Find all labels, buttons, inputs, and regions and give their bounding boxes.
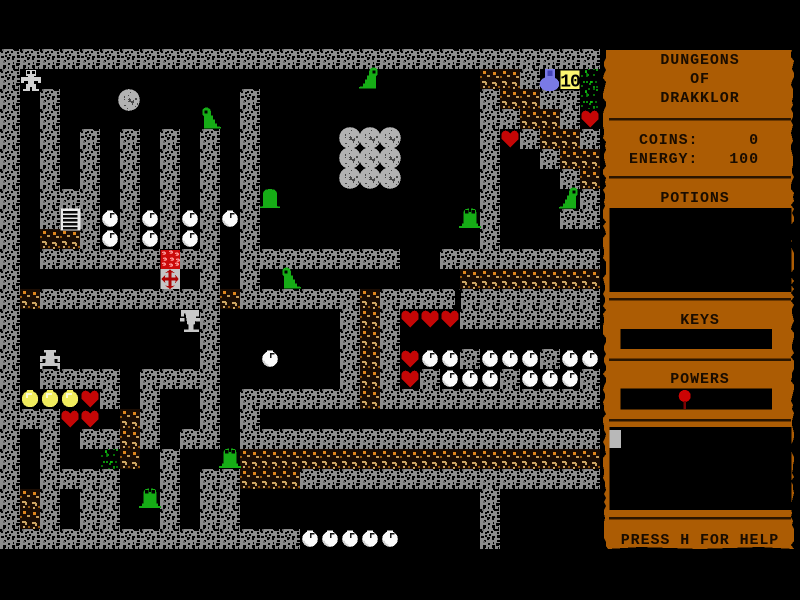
svg-text:100: 100 [729,151,759,168]
svg-text:COINS:: COINS: [639,132,698,149]
svg-text:0: 0 [749,132,759,149]
svg-text:POWERS: POWERS [670,371,729,388]
svg-text:POTIONS: POTIONS [660,190,729,207]
svg-text:KEYS: KEYS [680,312,720,329]
svg-text:OF: OF [690,71,710,88]
svg-text:DUNGEONS: DUNGEONS [660,52,739,69]
svg-text:ENERGY:: ENERGY: [629,151,698,168]
svg-text:DRAKKLOR: DRAKKLOR [660,90,739,107]
svg-text:PRESS H FOR HELP: PRESS H FOR HELP [621,532,779,549]
svg-text:10: 10 [560,73,580,93]
